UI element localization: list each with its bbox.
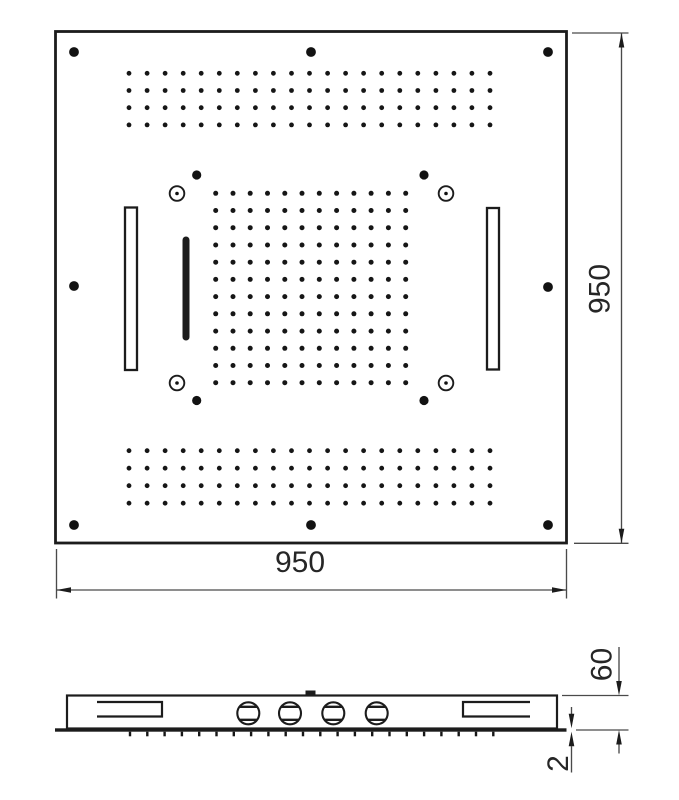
nozzle-dot xyxy=(289,105,294,110)
nozzle-dot xyxy=(248,294,253,299)
nozzle-dot xyxy=(386,191,391,196)
dim-width: 950 xyxy=(57,546,567,599)
nozzle-dot xyxy=(300,191,305,196)
nozzle-dot xyxy=(470,71,475,76)
nozzle-dot xyxy=(361,501,366,506)
nozzle-dot xyxy=(289,483,294,488)
nozzle-dot xyxy=(386,243,391,248)
nozzle-dot xyxy=(452,88,457,93)
nozzle-dot xyxy=(213,311,218,316)
nozzle-dot xyxy=(271,105,276,110)
nozzle-dot xyxy=(231,243,236,248)
arrowhead-up xyxy=(569,732,575,747)
nozzle-dot xyxy=(163,71,168,76)
nozzle-dot xyxy=(334,329,339,334)
nozzle-dot xyxy=(248,363,253,368)
nozzle-dot xyxy=(415,483,420,488)
nozzle-dot xyxy=(199,71,204,76)
nozzle-dot xyxy=(317,191,322,196)
nozzle-dot xyxy=(369,311,374,316)
arrowhead-up xyxy=(616,730,622,745)
nozzle-dot xyxy=(386,225,391,230)
nozzle-dot xyxy=(369,208,374,213)
nozzle-dot xyxy=(217,483,222,488)
nozzle-dot xyxy=(403,191,408,196)
nozzle-dot xyxy=(317,277,322,282)
nozzle-dot xyxy=(343,483,348,488)
nozzle-dot xyxy=(415,105,420,110)
nozzle-dot xyxy=(265,346,270,351)
nozzle-dot xyxy=(300,294,305,299)
jet-icon xyxy=(366,702,388,724)
nozzle-dot xyxy=(145,466,150,471)
nozzle-dot xyxy=(199,88,204,93)
nozzle-dot xyxy=(434,123,439,128)
nozzle-dot xyxy=(397,448,402,453)
nozzle-dot xyxy=(248,380,253,385)
nozzle-dot xyxy=(434,466,439,471)
nozzle-dot xyxy=(397,105,402,110)
nozzle-dot xyxy=(213,277,218,282)
nozzle-dot xyxy=(282,277,287,282)
dim-depth-label: 60 xyxy=(586,648,619,681)
nozzle-dot xyxy=(307,483,312,488)
nozzle-dot xyxy=(369,329,374,334)
nozzle-dot xyxy=(282,380,287,385)
nozzle-dot xyxy=(470,88,475,93)
nozzle-dot xyxy=(343,466,348,471)
nozzle-dot xyxy=(181,501,186,506)
nozzle-dot xyxy=(351,363,356,368)
nozzle-dot xyxy=(235,88,240,93)
nozzle-dot xyxy=(289,123,294,128)
nozzle-dot xyxy=(145,483,150,488)
screw-icon xyxy=(439,186,454,201)
nozzle-dot xyxy=(300,380,305,385)
nozzle-dot xyxy=(217,466,222,471)
nozzle-dot xyxy=(386,260,391,265)
nozzle-dot xyxy=(300,225,305,230)
nozzle-dot xyxy=(271,466,276,471)
nozzle-dot xyxy=(163,105,168,110)
nozzle-dot xyxy=(415,501,420,506)
nozzle-dot xyxy=(282,329,287,334)
nozzle-dot xyxy=(403,277,408,282)
nozzle-dot xyxy=(386,363,391,368)
nozzle-dot xyxy=(361,123,366,128)
nozzle-dot xyxy=(265,191,270,196)
nozzle-dot xyxy=(217,123,222,128)
nozzle-dot xyxy=(361,71,366,76)
nozzle-dot xyxy=(231,191,236,196)
nozzle-dot xyxy=(334,311,339,316)
arrowhead-right xyxy=(552,587,567,593)
nozzle-dot xyxy=(289,466,294,471)
nozzle-dot xyxy=(181,88,186,93)
nozzle-dot xyxy=(235,448,240,453)
nozzle-dot xyxy=(488,88,493,93)
nozzle-dot xyxy=(265,363,270,368)
mounting-hole-dot xyxy=(306,47,316,57)
nozzle-dot xyxy=(379,105,384,110)
nozzle-dot xyxy=(248,260,253,265)
nozzle-dot xyxy=(488,501,493,506)
nozzle-dot xyxy=(369,346,374,351)
nozzle-dot xyxy=(231,277,236,282)
nozzle-dot xyxy=(325,123,330,128)
nozzle-dot xyxy=(488,71,493,76)
mounting-hole-dot xyxy=(69,47,79,57)
nozzle-dot xyxy=(325,448,330,453)
nozzle-dot xyxy=(307,105,312,110)
nozzle-dot xyxy=(145,71,150,76)
nozzle-dot xyxy=(163,123,168,128)
nozzle-dot xyxy=(452,123,457,128)
nozzle-dot xyxy=(343,88,348,93)
nozzle-dot xyxy=(265,208,270,213)
screw-icon xyxy=(170,186,185,201)
nozzle-dot xyxy=(181,105,186,110)
nozzle-dot xyxy=(213,346,218,351)
nozzle-dot xyxy=(334,191,339,196)
nozzle-dot xyxy=(369,260,374,265)
nozzle-dot xyxy=(271,123,276,128)
nozzle-dot xyxy=(145,501,150,506)
nozzle-dot xyxy=(488,483,493,488)
nozzle-dot xyxy=(289,71,294,76)
nozzle-dot xyxy=(403,380,408,385)
nozzle-dot xyxy=(127,466,132,471)
nozzle-dot xyxy=(317,208,322,213)
face-plate-edge xyxy=(55,728,567,731)
nozzle-dot xyxy=(235,105,240,110)
nozzle-dot xyxy=(403,243,408,248)
nozzle-dot xyxy=(271,88,276,93)
nozzle-dot xyxy=(127,448,132,453)
nozzle-dot xyxy=(213,225,218,230)
nozzle-dot xyxy=(265,294,270,299)
nozzle-dot xyxy=(235,501,240,506)
nozzle-dot xyxy=(351,277,356,282)
nozzle-dot xyxy=(351,311,356,316)
nozzle-dot xyxy=(248,225,253,230)
nozzle-dot xyxy=(379,123,384,128)
nozzle-dot xyxy=(282,346,287,351)
nozzle-dot xyxy=(213,191,218,196)
thin-slot xyxy=(183,237,190,341)
nozzle-dot xyxy=(351,243,356,248)
nozzle-dot xyxy=(397,483,402,488)
nozzle-dot xyxy=(282,294,287,299)
nozzle-dot xyxy=(403,311,408,316)
nozzle-dot xyxy=(307,88,312,93)
nozzle-dot xyxy=(386,208,391,213)
nozzle-dot xyxy=(231,225,236,230)
nozzle-dot xyxy=(253,448,258,453)
nozzle-dot xyxy=(217,501,222,506)
nozzle-dot xyxy=(317,363,322,368)
nozzle-dot xyxy=(253,501,258,506)
nozzle-dot xyxy=(265,329,270,334)
nozzle-dot xyxy=(415,88,420,93)
dim-height-label: 950 xyxy=(584,264,617,314)
nozzle-dot xyxy=(334,208,339,213)
nozzle-dot xyxy=(452,71,457,76)
nozzle-dot xyxy=(397,123,402,128)
fixing-hole-dot xyxy=(192,396,201,405)
nozzle-dot xyxy=(265,225,270,230)
nozzle-dot xyxy=(369,225,374,230)
nozzle-dot xyxy=(351,260,356,265)
nozzle-dot xyxy=(397,88,402,93)
nozzle-dot xyxy=(415,71,420,76)
nozzle-dot xyxy=(470,105,475,110)
drawing-page: 950 950 xyxy=(0,0,679,800)
nozzle-dot xyxy=(217,88,222,93)
nozzle-dot xyxy=(199,466,204,471)
nozzle-dot xyxy=(231,346,236,351)
nozzle-dot xyxy=(317,260,322,265)
nozzle-dot xyxy=(351,208,356,213)
nozzle-dot xyxy=(403,260,408,265)
shower-head-technical-drawing: 950 950 xyxy=(0,0,679,800)
nozzle-dot xyxy=(488,466,493,471)
nozzle-dot xyxy=(271,448,276,453)
arrowhead-down xyxy=(619,529,625,544)
nozzle-dot xyxy=(351,225,356,230)
dim-width-label: 950 xyxy=(275,546,325,579)
nozzle-dot xyxy=(397,501,402,506)
nozzle-dot xyxy=(379,501,384,506)
jet-icon xyxy=(322,702,344,724)
nozzle-dot xyxy=(231,311,236,316)
nozzle-dot xyxy=(470,448,475,453)
screw-icon xyxy=(170,376,185,391)
nozzle-dot xyxy=(434,483,439,488)
nozzle-dot xyxy=(282,311,287,316)
nozzle-dot xyxy=(386,311,391,316)
nozzle-dot xyxy=(434,71,439,76)
nozzle-dot xyxy=(199,105,204,110)
nozzle-dot xyxy=(403,329,408,334)
nozzle-dot xyxy=(325,466,330,471)
nozzle-dot xyxy=(470,483,475,488)
nozzle-dot xyxy=(334,277,339,282)
nozzle-dot xyxy=(282,363,287,368)
nozzle-dot xyxy=(265,260,270,265)
nozzle-dot xyxy=(334,243,339,248)
nozzle-dot xyxy=(386,346,391,351)
nozzle-dot xyxy=(369,380,374,385)
nozzle-dot xyxy=(317,346,322,351)
nozzle-dot xyxy=(127,71,132,76)
fixing-hole-dot xyxy=(192,170,201,179)
nozzle-dot xyxy=(379,483,384,488)
nozzle-dot xyxy=(253,123,258,128)
nozzle-dot xyxy=(271,501,276,506)
nozzle-dot xyxy=(265,380,270,385)
nozzle-dot xyxy=(386,294,391,299)
nozzle-dot xyxy=(300,311,305,316)
nozzle-dot xyxy=(307,466,312,471)
nozzle-dot xyxy=(199,501,204,506)
nozzle-dot xyxy=(307,448,312,453)
nozzle-dot xyxy=(231,294,236,299)
nozzle-dot xyxy=(145,88,150,93)
nozzle-dot xyxy=(300,277,305,282)
nozzle-dot xyxy=(300,208,305,213)
nozzle-dot xyxy=(213,243,218,248)
side-nozzle-ticks xyxy=(130,732,493,737)
nozzle-dot xyxy=(181,123,186,128)
arrowhead-up xyxy=(619,33,625,48)
nozzle-dot xyxy=(235,466,240,471)
nozzle-dot xyxy=(470,123,475,128)
nozzle-dot xyxy=(397,71,402,76)
nozzle-dot xyxy=(379,448,384,453)
nozzle-dot xyxy=(334,294,339,299)
nozzle-dot xyxy=(488,105,493,110)
nozzle-dot xyxy=(403,225,408,230)
nozzle-dot xyxy=(343,123,348,128)
nozzle-dot xyxy=(199,123,204,128)
jet-icon xyxy=(237,702,259,724)
nozzle-dot xyxy=(217,71,222,76)
nozzle-dot xyxy=(379,71,384,76)
nozzle-dot xyxy=(213,260,218,265)
nozzle-dot xyxy=(325,71,330,76)
nozzle-dot xyxy=(361,88,366,93)
nozzle-dot xyxy=(397,466,402,471)
nozzle-dot xyxy=(282,208,287,213)
nozzle-dot xyxy=(452,466,457,471)
nozzle-dot xyxy=(289,448,294,453)
nozzle-dot xyxy=(217,448,222,453)
housing-profile xyxy=(67,696,557,729)
nozzle-dot xyxy=(289,88,294,93)
nozzle-dot xyxy=(386,277,391,282)
nozzle-dot xyxy=(434,448,439,453)
nozzle-dot xyxy=(235,71,240,76)
arrowhead-down xyxy=(616,681,622,696)
nozzle-dot xyxy=(181,483,186,488)
nozzle-dot xyxy=(470,466,475,471)
nozzle-dot xyxy=(369,191,374,196)
nozzle-dot xyxy=(163,483,168,488)
nozzle-dot xyxy=(434,501,439,506)
nozzle-dot xyxy=(282,243,287,248)
mounting-hole-dot xyxy=(543,282,553,292)
nozzle-dot xyxy=(317,294,322,299)
nozzle-dot xyxy=(145,448,150,453)
nozzle-dot xyxy=(163,466,168,471)
right-slot xyxy=(487,208,499,370)
nozzle-dot xyxy=(127,123,132,128)
jet-icon xyxy=(279,702,301,724)
nozzle-dot xyxy=(127,501,132,506)
nozzle-dot xyxy=(403,363,408,368)
nozzle-dot xyxy=(343,105,348,110)
nozzle-dot xyxy=(351,380,356,385)
nozzle-dot xyxy=(253,71,258,76)
mounting-hole-dot xyxy=(543,520,553,530)
nozzle-dot xyxy=(307,71,312,76)
nozzle-dot xyxy=(369,363,374,368)
nozzle-dot xyxy=(403,346,408,351)
nozzle-dot xyxy=(265,243,270,248)
nozzle-dot xyxy=(434,88,439,93)
nozzle-dot xyxy=(470,501,475,506)
nozzle-dot xyxy=(181,448,186,453)
nozzle-dot xyxy=(379,466,384,471)
nozzle-dot xyxy=(415,448,420,453)
nozzle-dot xyxy=(282,260,287,265)
mounting-hole-dot xyxy=(69,281,79,291)
nozzle-dot xyxy=(181,466,186,471)
nozzle-dot xyxy=(248,191,253,196)
nozzle-dot xyxy=(415,466,420,471)
nozzle-dot xyxy=(265,311,270,316)
left-slot xyxy=(125,208,137,371)
nozzle-dot xyxy=(343,501,348,506)
nozzle-dot xyxy=(181,71,186,76)
nozzle-dot xyxy=(334,225,339,230)
nozzle-dot xyxy=(351,191,356,196)
nozzle-dot xyxy=(265,277,270,282)
nozzle-dot xyxy=(351,294,356,299)
arrowhead-down xyxy=(569,714,575,729)
nozzle-dot xyxy=(317,380,322,385)
nozzle-dot xyxy=(300,346,305,351)
nozzle-dot xyxy=(213,329,218,334)
nozzle-dot xyxy=(361,448,366,453)
nozzle-dot xyxy=(213,363,218,368)
nozzle-dot xyxy=(334,346,339,351)
nozzle-dot xyxy=(248,243,253,248)
nozzle-dot xyxy=(334,380,339,385)
nozzle-dot xyxy=(452,501,457,506)
nozzle-dot xyxy=(317,243,322,248)
arrowhead-left xyxy=(57,587,72,593)
nozzle-dot xyxy=(127,483,132,488)
nozzle-dot xyxy=(253,483,258,488)
dim-height: 950 xyxy=(572,33,629,543)
nozzle-dot xyxy=(163,88,168,93)
nozzle-dot xyxy=(343,448,348,453)
nozzle-dot xyxy=(163,448,168,453)
nozzle-dot xyxy=(325,483,330,488)
nozzle-dot xyxy=(325,501,330,506)
nozzle-dot xyxy=(253,88,258,93)
nozzle-dot xyxy=(213,380,218,385)
nozzle-dot xyxy=(386,380,391,385)
nozzle-dot xyxy=(369,277,374,282)
nozzle-dot xyxy=(434,105,439,110)
nozzle-dot xyxy=(235,123,240,128)
nozzle-dot xyxy=(253,466,258,471)
nozzle-dot xyxy=(369,294,374,299)
nozzle-dot xyxy=(271,71,276,76)
mounting-hole-dot xyxy=(69,520,79,530)
nozzle-dot xyxy=(361,466,366,471)
nozzle-dot xyxy=(415,123,420,128)
mounting-hole-dot xyxy=(306,520,316,530)
nozzle-dot xyxy=(361,483,366,488)
nozzle-dot xyxy=(235,483,240,488)
nozzle-dot xyxy=(300,363,305,368)
nozzle-dot xyxy=(248,346,253,351)
nozzle-dot xyxy=(300,329,305,334)
